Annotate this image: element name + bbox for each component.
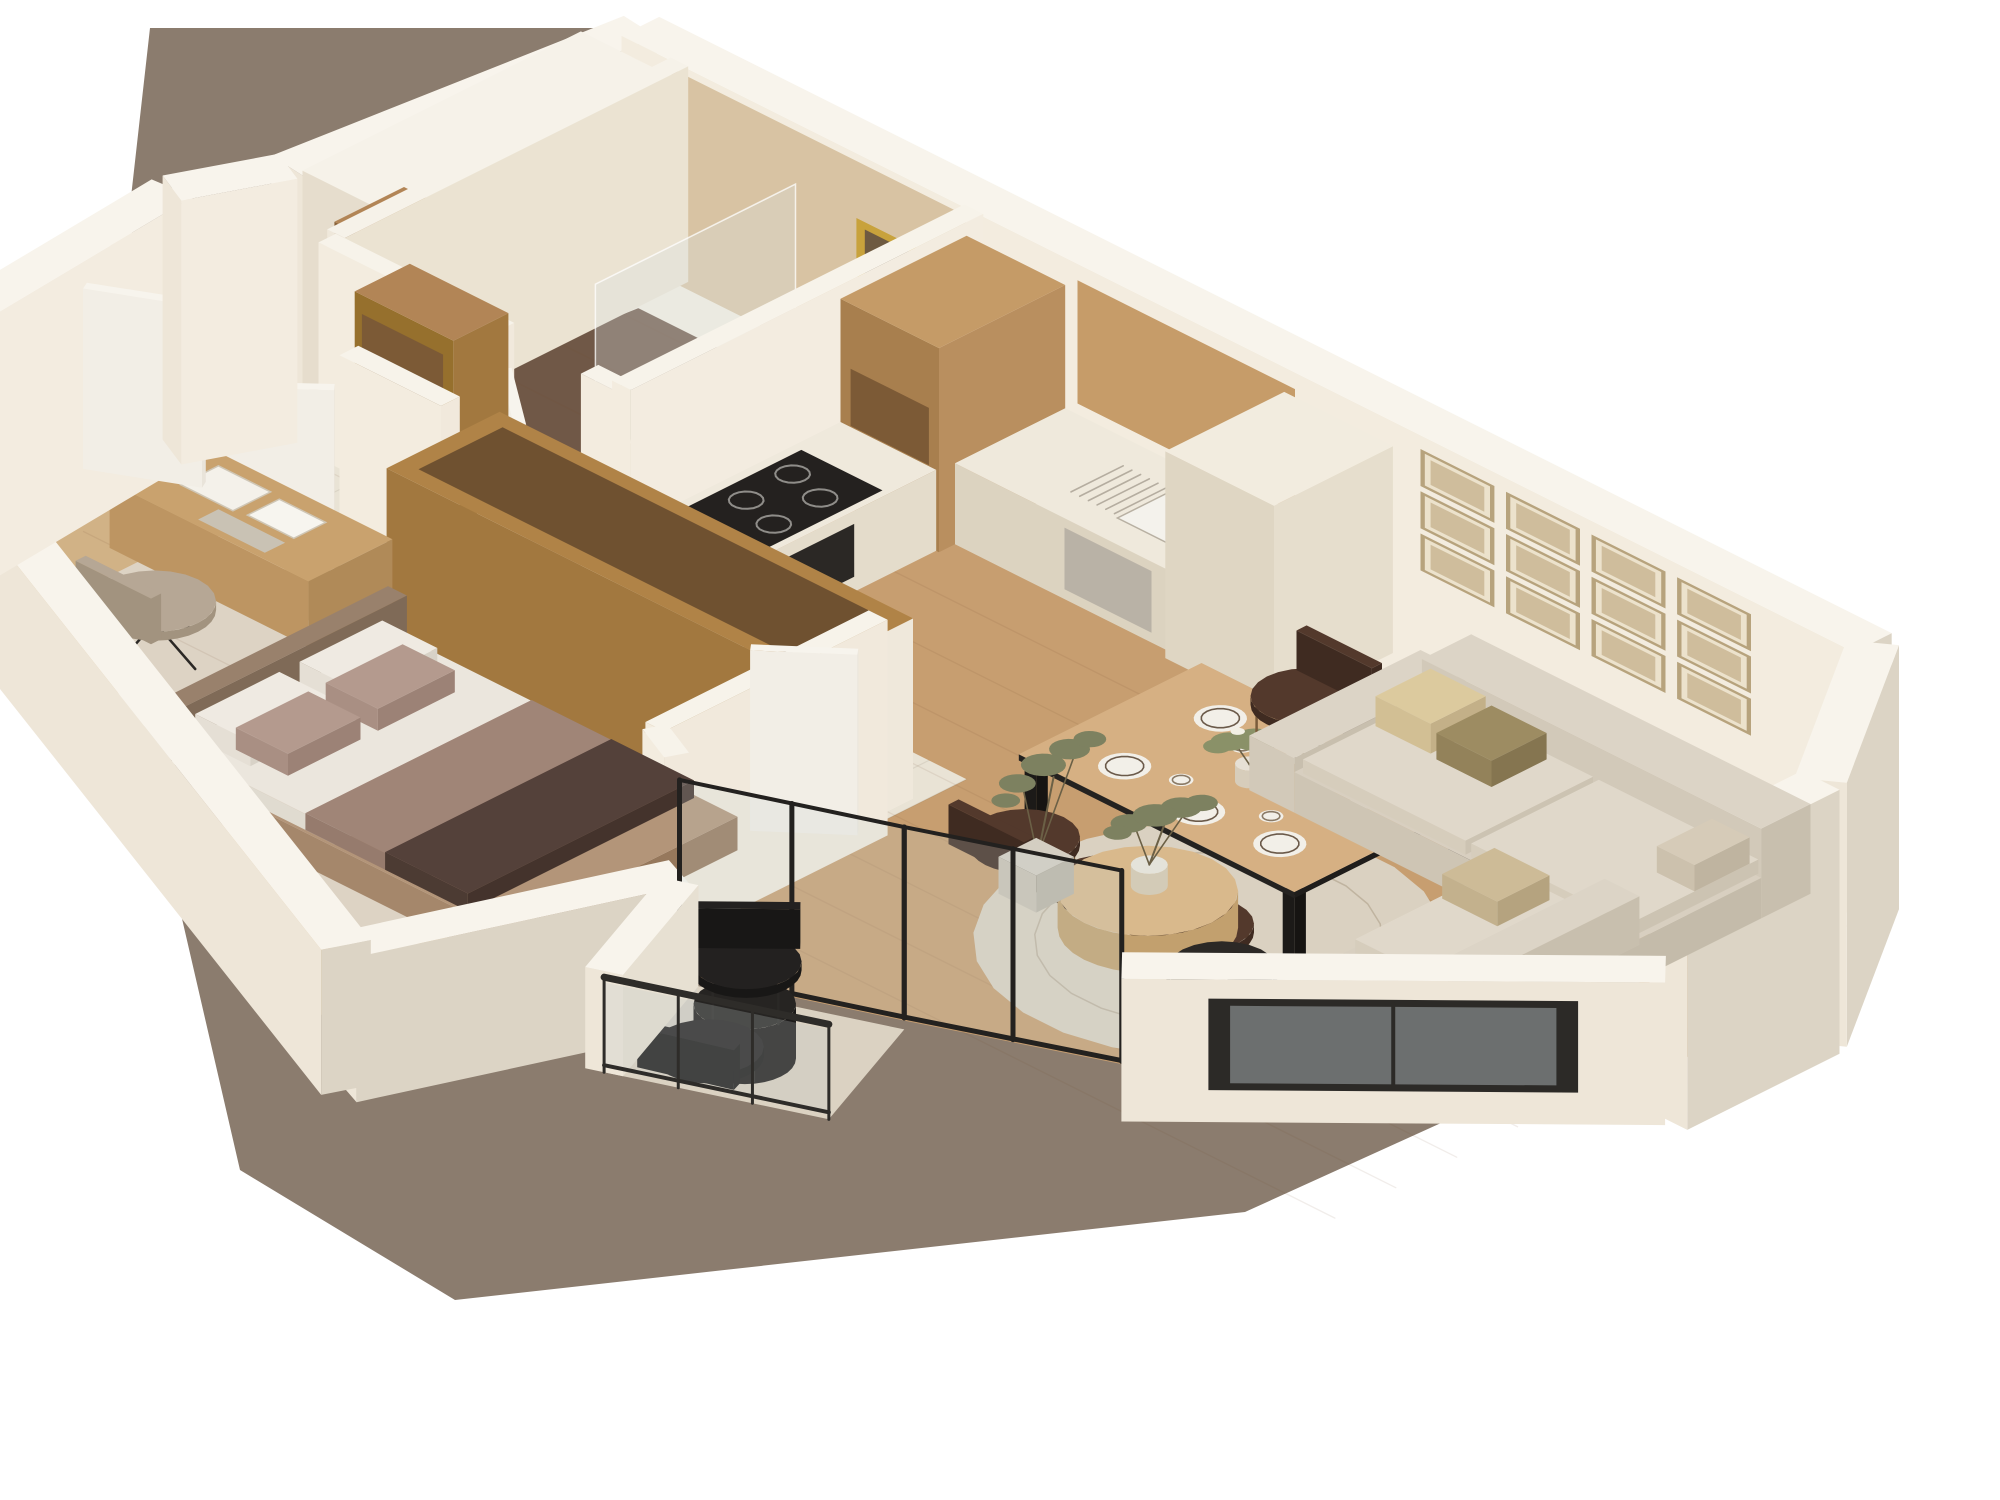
wall-window-front-top — [1121, 952, 1666, 982]
plant-leaves — [991, 793, 1020, 807]
plant-flowers — [1231, 728, 1245, 735]
wall-entry-chamfer-face1 — [181, 179, 297, 465]
wall-entry-chamfer-face0 — [163, 176, 182, 465]
plant-leaves — [1021, 754, 1066, 777]
floor-plan-stage — [0, 0, 2000, 1500]
dining-table-leg-4-py — [1283, 890, 1295, 961]
wall-left-diagonal-face1 — [321, 940, 371, 1095]
apartment-3d-floor-plan — [0, 0, 2000, 1500]
plant-leaves — [1103, 825, 1132, 839]
dining-table-leg-4-px — [1294, 890, 1306, 961]
plant-leaves — [999, 774, 1036, 792]
office-chair-back-face1 — [151, 593, 161, 644]
bedroom-door-2-face0 — [857, 649, 858, 836]
chair-back-top — [694, 901, 801, 909]
chair-back-face1 — [694, 908, 801, 949]
plant-leaves — [1133, 804, 1178, 827]
plant-leaves — [1074, 731, 1107, 747]
